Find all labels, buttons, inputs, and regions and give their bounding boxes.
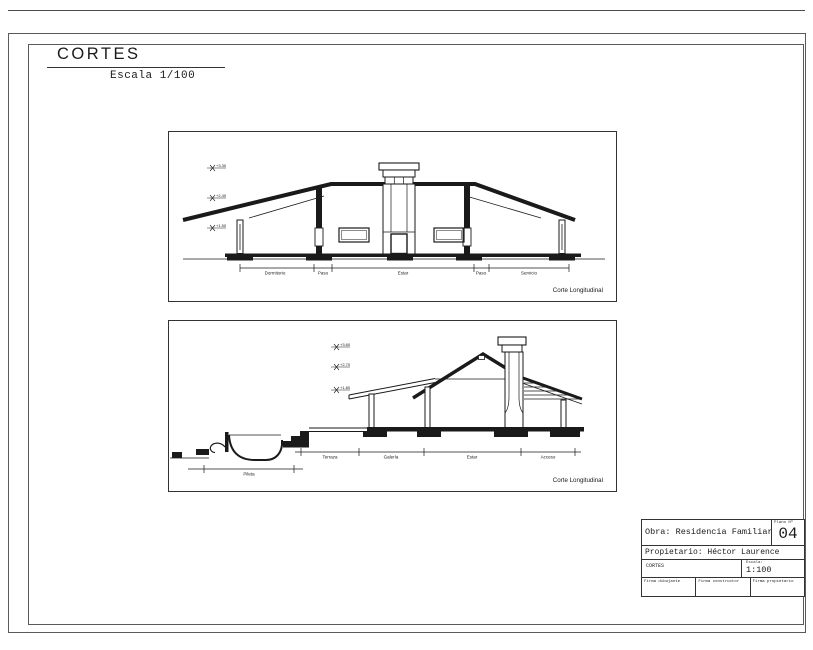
room-label: Acceso: [541, 455, 556, 460]
drawing-caption: Corte Longitudinal: [553, 477, 603, 484]
title-block-row-obra: Obra: Residencia Familiar Plano Nº 04: [642, 520, 804, 546]
top-border-line: [8, 10, 805, 11]
sheet-title: CORTES: [47, 45, 225, 68]
propietario-field: Propietario: Héctor Laurence: [642, 546, 804, 560]
pool-label: Pileta: [243, 472, 255, 477]
level-label: +3.60: [340, 342, 351, 347]
section-2-svg: +3.60 +2.70 +1.80: [169, 321, 616, 491]
section-drawing-1: +3.30 +2.40 +1.50 Dormitor: [168, 131, 617, 302]
room-labels: Dormitorio Paso Estar Paso Servicio: [265, 271, 538, 276]
plano-number-cell: Plano Nº 04: [771, 520, 804, 545]
level-markers: +3.30 +2.40 +1.50: [207, 163, 227, 231]
drawing-caption: Corte Longitudinal: [553, 287, 603, 294]
scale-note: Escala 1/100: [110, 70, 195, 82]
level-markers: +3.60 +2.70 +1.80: [331, 342, 351, 393]
terrace-steps: [283, 431, 309, 448]
pool-section: [170, 432, 282, 460]
plano-number-value: 04: [772, 526, 804, 543]
title-block: Obra: Residencia Familiar Plano Nº 04 Pr…: [641, 519, 805, 597]
fireplace-chimney: [379, 163, 419, 254]
section-drawing-2: +3.60 +2.70 +1.80: [168, 320, 617, 492]
dimension-line: [295, 448, 581, 456]
firma-constructor-cell: Firma constructor: [695, 578, 749, 596]
room-label: Paso: [318, 271, 329, 276]
document-name-cell: CORTES: [642, 560, 741, 577]
obra-field: Obra: Residencia Familiar: [642, 520, 771, 545]
level-label: +3.30: [216, 163, 227, 168]
room-label: Dormitorio: [265, 271, 286, 276]
escala-cell: Escala: 1:100: [741, 560, 804, 577]
gallery-roof: [349, 379, 435, 400]
firma-propietario-cell: Firma propietario: [750, 578, 804, 596]
room-label: Terraza: [322, 455, 338, 460]
level-label: +1.80: [340, 385, 351, 390]
room-label: Estar: [467, 455, 478, 460]
chimney: [498, 337, 526, 429]
room-label: Estar: [398, 271, 409, 276]
level-label: +2.40: [216, 193, 227, 198]
plan-sheet: CORTES Escala 1/100: [0, 0, 813, 650]
title-block-row-escala: CORTES Escala: 1:100: [642, 560, 804, 578]
access-canopy: [522, 378, 582, 404]
firma-dibujante-cell: Firma dibujante: [642, 578, 695, 596]
level-label: +1.50: [216, 223, 227, 228]
floor-slab: [309, 427, 584, 437]
title-block-row-firmas: Firma dibujante Firma constructor Firma …: [642, 578, 804, 596]
columns: [369, 387, 566, 428]
level-label: +2.70: [340, 362, 351, 367]
floor-slab: [225, 254, 581, 261]
room-label: Paso: [476, 271, 487, 276]
escala-value: 1:100: [746, 566, 804, 575]
room-label: Servicio: [521, 271, 538, 276]
roof-outline: [183, 184, 575, 220]
section-1-svg: +3.30 +2.40 +1.50 Dormitor: [169, 132, 616, 301]
room-label: Galería: [384, 455, 399, 460]
